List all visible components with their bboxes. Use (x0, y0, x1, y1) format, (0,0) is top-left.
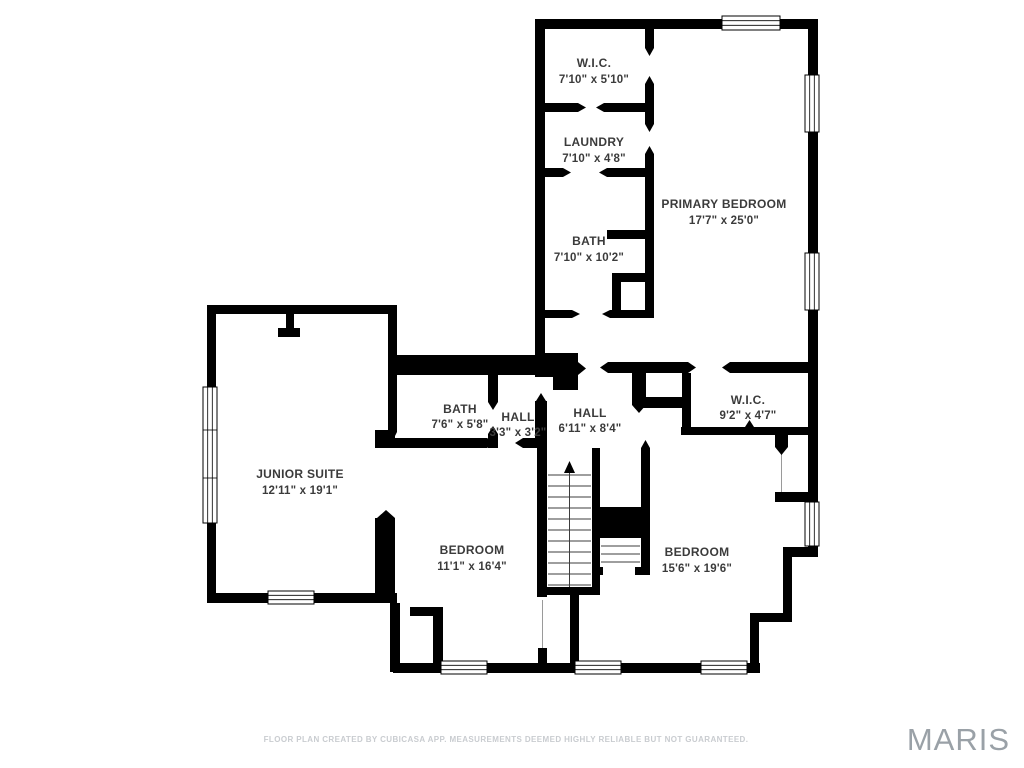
room-dims: 12'11" x 19'1" (262, 485, 338, 497)
room-name: BATH (572, 234, 606, 248)
room-dims: 7'10" x 10'2" (554, 252, 624, 264)
room-dims: 11'1" x 16'4" (437, 561, 507, 573)
footer-disclaimer: FLOOR PLAN CREATED BY CUBICASA APP. MEAS… (0, 735, 1012, 744)
stair-up-arrow-icon (564, 461, 575, 473)
window-top (722, 16, 780, 30)
floor-plan-svg: W.I.C. 7'10" x 5'10" LAUNDRY 7'10" x 4'8… (0, 0, 1024, 768)
room-dims: 3'3" x 3'2" (490, 427, 547, 439)
room-dims: 15'6" x 19'6" (662, 563, 732, 575)
window-right-upper (805, 75, 819, 132)
room-dims: 7'10" x 4'8" (562, 153, 626, 165)
room-name: W.I.C. (577, 56, 611, 70)
room-name: W.I.C. (731, 393, 765, 407)
room-dims: 7'10" x 5'10" (559, 74, 629, 86)
room-label-laundry: LAUNDRY 7'10" x 4'8" (562, 135, 626, 165)
room-dims: 17'7" x 25'0" (689, 215, 759, 227)
floor-plan-page: W.I.C. 7'10" x 5'10" LAUNDRY 7'10" x 4'8… (0, 0, 1024, 768)
room-dims: 9'2" x 4'7" (720, 410, 777, 422)
room-name: HALL (573, 406, 606, 420)
window-right-lower (805, 502, 819, 546)
window-bottom-left (441, 661, 487, 674)
room-label-primary-bedroom: PRIMARY BEDROOM 17'7" x 25'0" (661, 197, 786, 227)
window-right-mid (805, 253, 819, 310)
windows (203, 16, 819, 674)
room-name: LAUNDRY (564, 135, 624, 149)
room-label-junior-suite: JUNIOR SUITE 12'11" x 19'1" (256, 467, 344, 497)
room-label-bath-mid: BATH 7'6" x 5'8" (432, 402, 489, 431)
room-dims: 7'6" x 5'8" (432, 419, 489, 431)
room-name: HALL (501, 410, 534, 424)
room-name: BATH (443, 402, 477, 416)
room-name: BEDROOM (665, 545, 730, 559)
window-bottom-right (701, 661, 747, 674)
room-labels: W.I.C. 7'10" x 5'10" LAUNDRY 7'10" x 4'8… (256, 56, 786, 575)
room-name: JUNIOR SUITE (256, 467, 344, 481)
room-name: PRIMARY BEDROOM (661, 197, 786, 211)
room-label-bedroom-right: BEDROOM 15'6" x 19'6" (662, 545, 732, 575)
room-label-wic-top: W.I.C. 7'10" x 5'10" (559, 56, 629, 86)
window-junior-bottom (268, 591, 314, 604)
maris-logo: MARIS (907, 722, 1010, 758)
room-label-wic-right: W.I.C. 9'2" x 4'7" (720, 393, 777, 422)
room-label-hall-main: HALL 6'11" x 8'4" (559, 406, 622, 435)
window-bottom-mid (575, 661, 621, 674)
room-label-bedroom-left: BEDROOM 11'1" x 16'4" (437, 543, 507, 573)
window-junior-left (203, 387, 217, 523)
room-dims: 6'11" x 8'4" (559, 423, 622, 435)
room-name: BEDROOM (440, 543, 505, 557)
